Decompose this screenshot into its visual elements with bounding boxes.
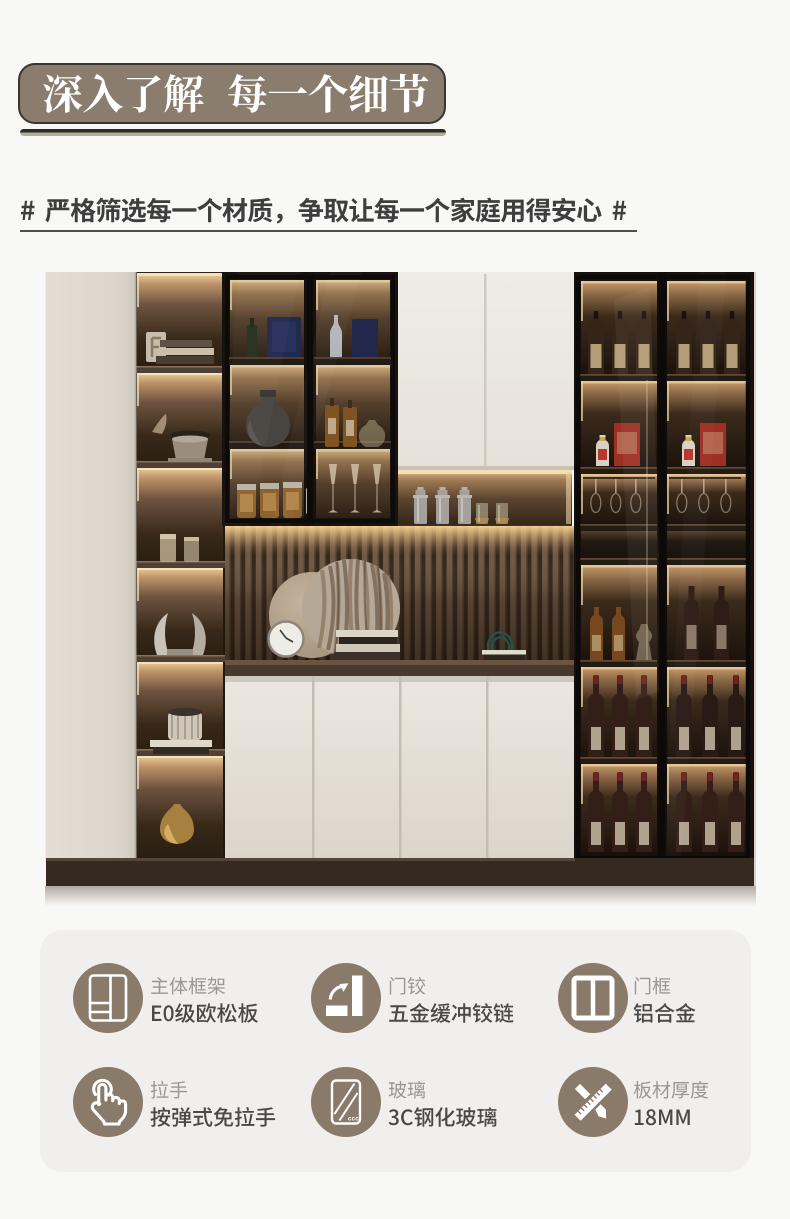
svg-text:ccc: ccc <box>348 1117 359 1123</box>
